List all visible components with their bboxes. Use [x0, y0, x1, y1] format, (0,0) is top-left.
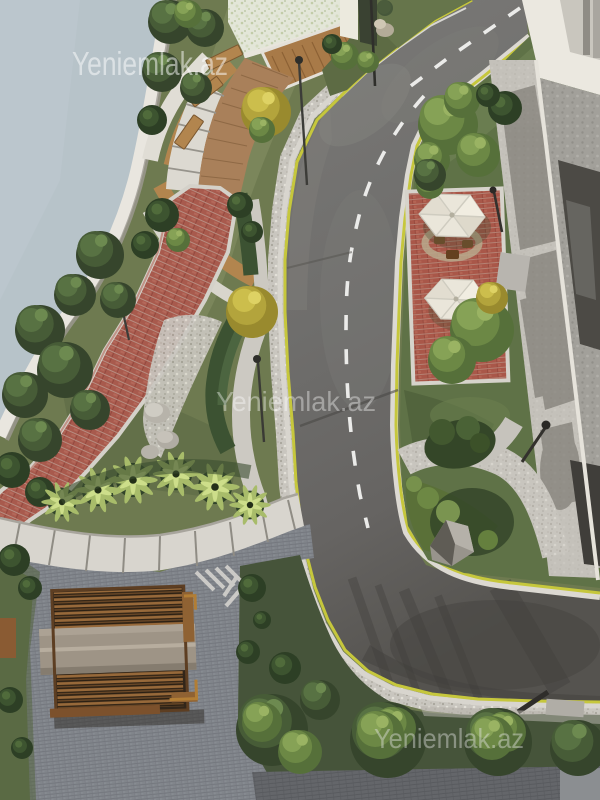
svg-text:Yeniemlak.az: Yeniemlak.az — [216, 386, 376, 417]
svg-text:Yeniemlak.az: Yeniemlak.az — [374, 723, 524, 754]
svg-text:Yeniemlak.az: Yeniemlak.az — [72, 45, 228, 82]
